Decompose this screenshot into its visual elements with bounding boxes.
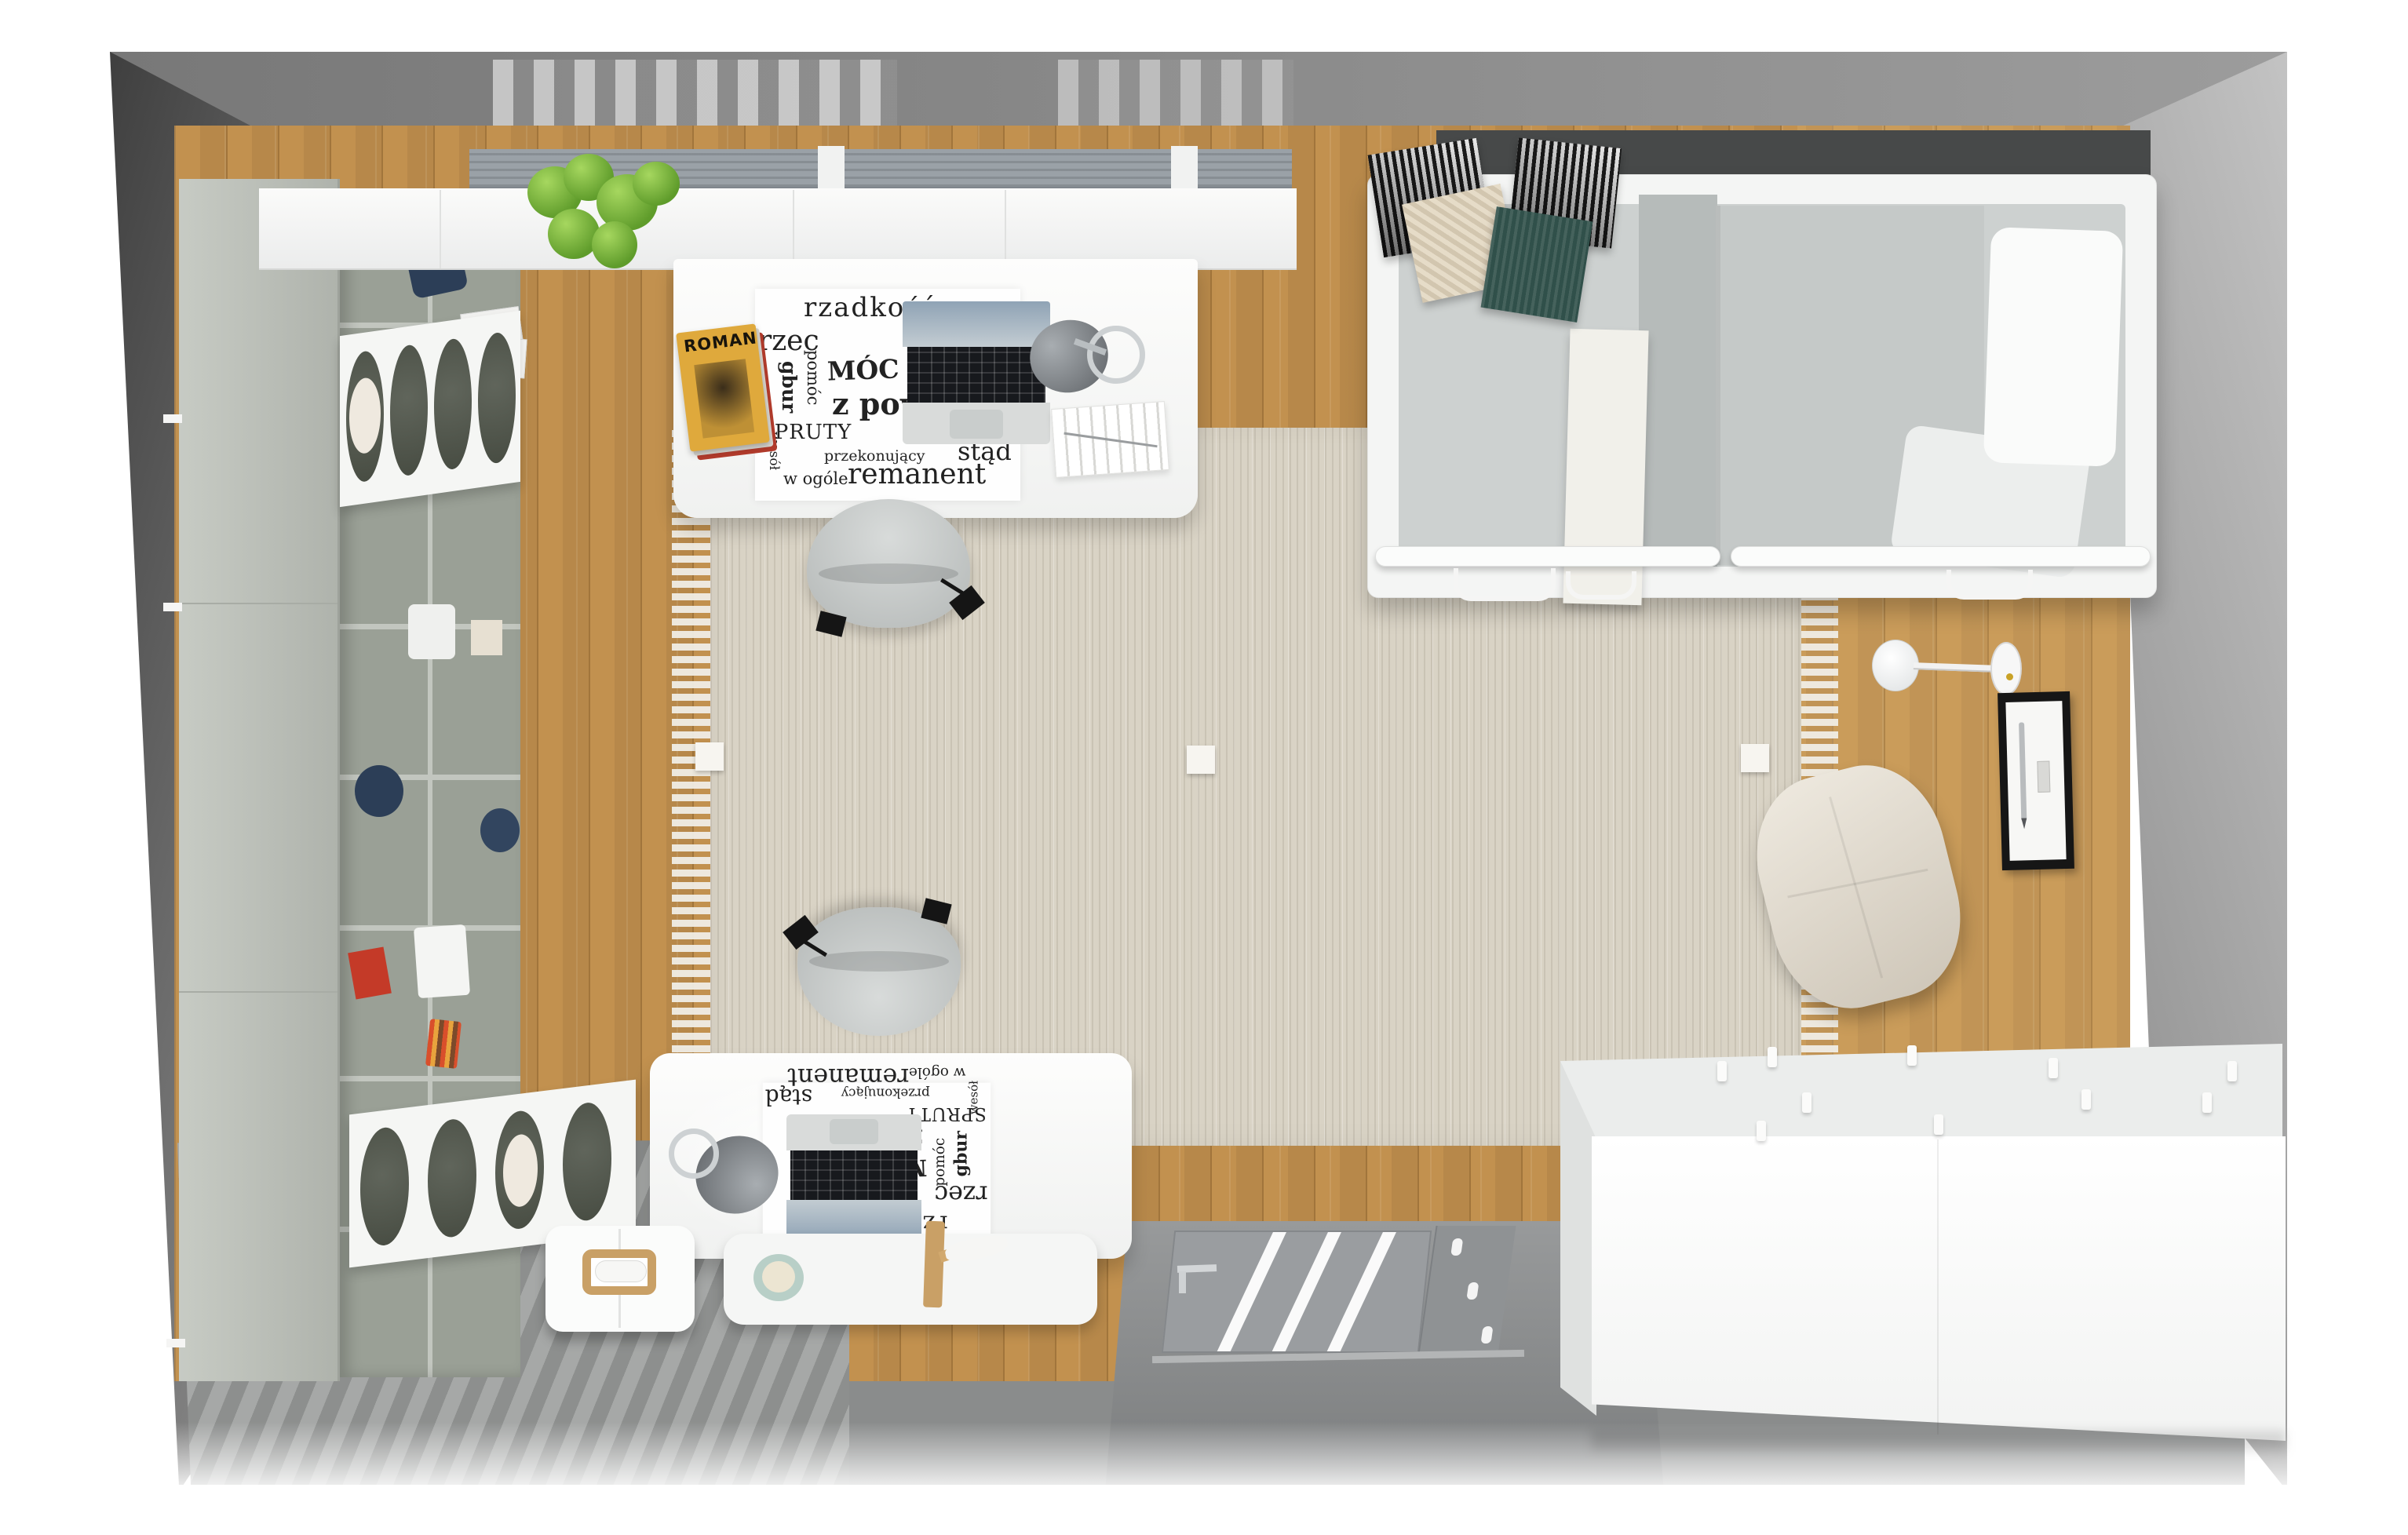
wall-lamp-base: [1990, 642, 2022, 695]
window-mullion: [818, 146, 845, 195]
frame-art-label: [2037, 761, 2050, 793]
mat-word: remanent: [848, 458, 986, 490]
bottom-fade: [0, 1422, 2408, 1486]
chair-crease: [809, 951, 950, 972]
laptop: [903, 301, 1050, 444]
organizer-bottle: [595, 1260, 647, 1282]
mat-word: w ogóle: [783, 469, 848, 488]
sill-seam: [440, 190, 441, 268]
mat-word: gbur: [950, 1131, 971, 1176]
round-cutout: [478, 330, 516, 466]
laptop: [786, 1114, 921, 1240]
sill-seam: [793, 190, 794, 268]
wall-lamp-shade: [1872, 640, 1919, 691]
shelf-band-with-holes: [340, 311, 520, 507]
cabinet-peg: [2081, 1089, 2091, 1110]
cabinet-peg: [1802, 1092, 1811, 1113]
wardrobe-side-panel: [179, 179, 340, 1381]
bed-rail-hook: [1454, 568, 1556, 601]
laptop-trackpad: [950, 410, 1003, 438]
wooden-clamp: [923, 1221, 945, 1308]
chair-seat: [797, 907, 961, 1036]
white-box: [408, 604, 455, 659]
gray-blanket: [1639, 195, 1717, 567]
plant-leaf: [633, 162, 680, 206]
beige-box: [471, 620, 502, 655]
cabinet-peg: [1757, 1121, 1766, 1141]
bottom-white-strip: [0, 1485, 2408, 1535]
navy-round-box: [480, 808, 520, 852]
laptop-keyboard: [790, 1150, 918, 1199]
magazine-cat-art: [695, 359, 754, 438]
wall-clip: [163, 603, 182, 611]
desk-lamp-ring: [1087, 326, 1145, 384]
bed-rail-hook: [1566, 571, 1636, 600]
picture-frame: [1998, 691, 2074, 870]
hotspot-marker[interactable]: [1741, 744, 1769, 772]
white-canister: [414, 924, 470, 998]
round-cutout: [434, 337, 472, 472]
cabinet-peg: [1717, 1061, 1727, 1081]
entrance-door: [1162, 1231, 1432, 1353]
door-hinge: [1480, 1326, 1493, 1344]
office-chair-bottom: [797, 907, 961, 1036]
mat-word: gbur: [778, 361, 801, 413]
hotspot-marker[interactable]: [1187, 746, 1215, 774]
mat-word: wesół: [967, 1081, 981, 1114]
organizer-wire: [1064, 432, 1157, 448]
plant-leaf: [592, 221, 637, 268]
mat-word: remanent: [787, 1063, 909, 1091]
frame-matte: [2005, 701, 2066, 861]
ceiling-light: [493, 60, 897, 126]
round-cutout: [390, 342, 428, 478]
cabinet-peg: [2227, 1061, 2237, 1081]
laptop-keyboard: [907, 347, 1046, 403]
panel-seam: [179, 603, 337, 604]
plant-leaf: [548, 209, 600, 259]
desk-lamp-ring: [669, 1128, 719, 1179]
pencil-bundle: [425, 1019, 462, 1069]
cabinet-peg: [1934, 1114, 1943, 1135]
round-cutout: [563, 1099, 611, 1223]
navy-round-box: [355, 765, 403, 817]
mat-word: pomóc: [932, 1138, 948, 1187]
wall-lamp-detail: [2006, 673, 2013, 680]
door-handle: [1179, 1271, 1186, 1293]
cabinet-seam: [1937, 1139, 1939, 1435]
rug-fringe-left: [672, 430, 711, 1140]
window-sill-desk: [259, 188, 1297, 270]
ceiling-light: [1058, 60, 1293, 126]
cabinet-peg: [1907, 1045, 1917, 1066]
cabinet-peg: [2049, 1058, 2058, 1078]
bed-rail: [1731, 546, 2151, 567]
wall-clip: [163, 414, 182, 423]
door-hinge: [1450, 1238, 1463, 1256]
office-chair-top: [807, 499, 970, 628]
laptop-trackpad: [830, 1119, 878, 1144]
hotspot-marker[interactable]: [695, 742, 724, 771]
cup-contents: [762, 1261, 795, 1293]
storage-cabinet-front: [1592, 1136, 2286, 1441]
door-hinge: [1466, 1282, 1479, 1300]
cabinet-peg: [2202, 1092, 2212, 1113]
magazine-stack: ROMAN: [676, 323, 770, 451]
panel-seam: [179, 991, 337, 993]
round-cutout: [428, 1117, 476, 1241]
laptop-lid: [903, 301, 1050, 347]
bed-end-cushion: [1983, 227, 2123, 467]
window-mullion: [1171, 146, 1198, 195]
knit-pillow-green: [1481, 206, 1593, 323]
mat-word: MÓC: [826, 353, 899, 386]
cabinet-peg: [1768, 1047, 1777, 1067]
mat-word: w ogóle: [909, 1065, 966, 1081]
bed-rail-hook: [1946, 570, 2033, 600]
sill-seam: [1005, 190, 1006, 268]
round-cutout: [360, 1125, 409, 1249]
bed-rail: [1375, 546, 1720, 567]
mat-word: pomóc: [804, 350, 823, 405]
slat-organizer: [1051, 401, 1169, 478]
room-render: rzadkość rzec MÓC wła z powr SPRUTY prze…: [0, 0, 2408, 1535]
wall-clip: [166, 1339, 185, 1347]
